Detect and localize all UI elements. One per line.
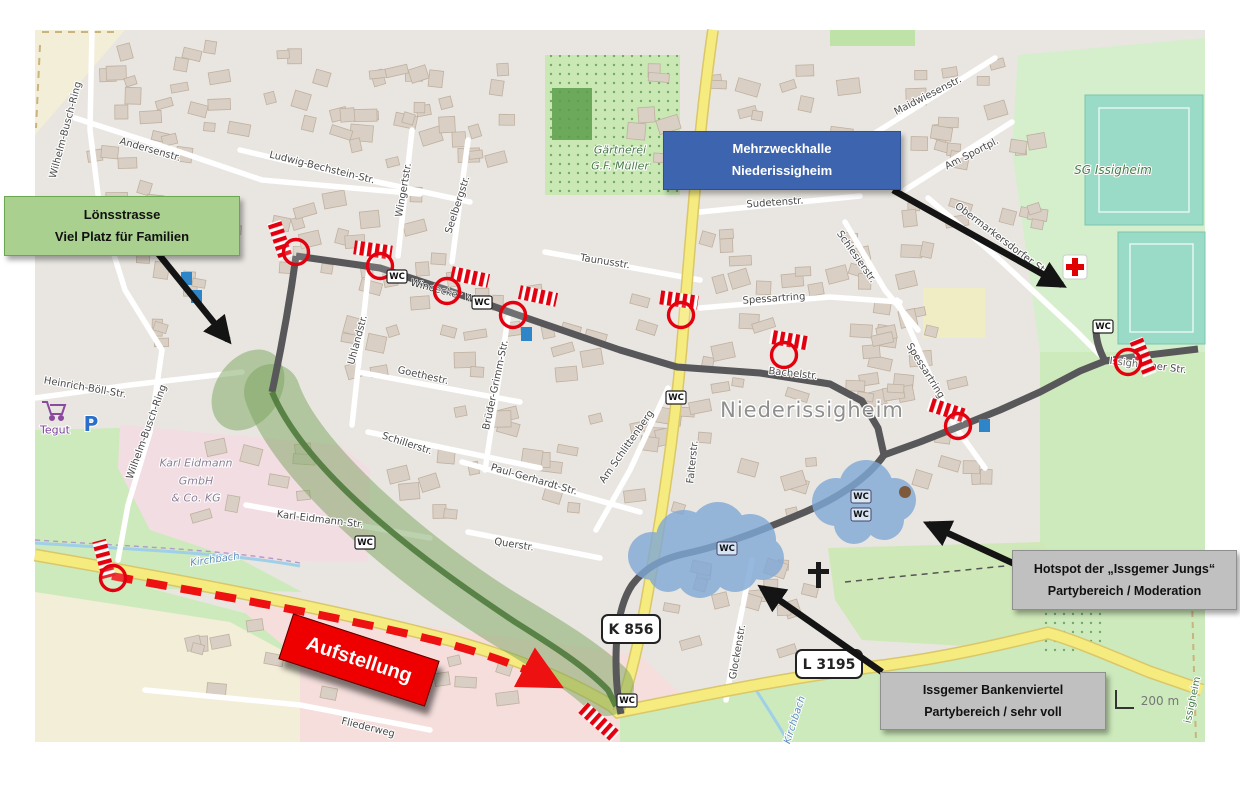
building xyxy=(174,57,189,72)
svg-text:& Co. KG: & Co. KG xyxy=(171,492,220,505)
building xyxy=(359,210,380,229)
building xyxy=(340,108,355,123)
building xyxy=(720,238,733,252)
building xyxy=(924,325,938,338)
svg-text:WC: WC xyxy=(619,696,635,706)
callout-hotspot: Hotspot der „Issgemer Jungs“ Partybereic… xyxy=(1012,550,1237,610)
wc-marker: WC xyxy=(617,694,637,707)
callout-line: Issgemer Bankenviertel xyxy=(881,683,1105,697)
building xyxy=(496,691,520,706)
building xyxy=(712,592,730,609)
tegut-label: Tegut xyxy=(39,424,71,437)
svg-text:WC: WC xyxy=(853,510,869,520)
svg-text:WC: WC xyxy=(719,544,735,554)
svg-text:WC: WC xyxy=(853,492,869,502)
wc-marker: WC xyxy=(666,391,686,404)
callout-line: Mehrzweckhalle xyxy=(664,142,900,157)
wc-marker: WC xyxy=(472,296,492,309)
building xyxy=(434,672,450,687)
building xyxy=(398,482,420,500)
svg-text:GmbH: GmbH xyxy=(179,475,214,488)
building xyxy=(850,324,873,338)
building xyxy=(796,65,814,77)
building xyxy=(354,109,377,122)
svg-text:WC: WC xyxy=(1095,322,1111,332)
building xyxy=(729,255,751,266)
building xyxy=(846,380,865,391)
building xyxy=(246,619,264,632)
building xyxy=(1009,139,1027,154)
svg-text:G.F. Müller: G.F. Müller xyxy=(591,160,650,173)
building xyxy=(204,40,217,54)
building xyxy=(101,145,119,158)
building xyxy=(805,457,816,466)
building xyxy=(454,352,476,368)
building xyxy=(862,344,880,358)
building xyxy=(125,87,141,104)
building xyxy=(1031,219,1044,230)
wc-marker: WC xyxy=(1093,320,1113,333)
building xyxy=(410,296,430,310)
svg-text:SG Issigheim: SG Issigheim xyxy=(1074,163,1152,177)
svg-text:WC: WC xyxy=(389,272,405,282)
building xyxy=(555,366,578,382)
building xyxy=(428,70,444,88)
building xyxy=(349,138,362,153)
building xyxy=(454,406,467,418)
svg-text:Gärtnerei: Gärtnerei xyxy=(594,144,646,157)
callout-line: Niederissigheim xyxy=(664,164,900,179)
building xyxy=(764,579,778,588)
building xyxy=(756,281,771,295)
svg-text:200 m: 200 m xyxy=(1141,694,1179,708)
place-label: Niederissigheim xyxy=(720,398,904,422)
building xyxy=(439,96,453,110)
parking-icon: P xyxy=(84,412,99,436)
building xyxy=(489,79,504,96)
building xyxy=(497,63,509,76)
wc-marker: WC xyxy=(387,270,407,283)
building xyxy=(431,253,446,265)
svg-text:Karl Eidmann: Karl Eidmann xyxy=(159,457,232,470)
building xyxy=(499,114,515,125)
callout-bankenviertel: Issgemer Bankenviertel Partybereich / se… xyxy=(880,672,1106,730)
building xyxy=(455,676,477,688)
callout-line: Viel Platz für Familien xyxy=(5,230,239,245)
callout-line: Partybereich / Moderation xyxy=(1013,584,1236,598)
svg-text:L 3195: L 3195 xyxy=(803,657,856,673)
callout-line: Partybereich / sehr voll xyxy=(881,705,1105,719)
building xyxy=(288,49,302,64)
svg-text:WC: WC xyxy=(474,298,490,308)
building xyxy=(118,157,137,168)
building xyxy=(977,76,989,85)
wc-marker: WC xyxy=(717,542,737,555)
building xyxy=(452,132,466,148)
building xyxy=(444,509,458,519)
building xyxy=(751,110,763,121)
building xyxy=(638,107,655,123)
building xyxy=(567,502,580,513)
building xyxy=(1027,133,1047,151)
callout-mehrzweckhalle: Mehrzweckhalle Niederissigheim xyxy=(663,131,901,190)
event-route-map-page: Wilhelm-Busch-Ring Andersenstr. Ludwig-B… xyxy=(0,0,1240,795)
wc-marker: WC xyxy=(851,490,871,503)
callout-line: Hotspot der „Issgemer Jungs“ xyxy=(1013,562,1236,576)
building xyxy=(415,262,429,277)
wc-marker: WC xyxy=(851,508,871,521)
building xyxy=(320,686,338,700)
svg-text:K 856: K 856 xyxy=(609,622,654,638)
building xyxy=(930,125,952,141)
building xyxy=(580,348,603,367)
building xyxy=(627,122,646,140)
callout-loensstrasse: Lönsstrasse Viel Platz für Familien xyxy=(4,196,240,256)
building xyxy=(887,384,904,393)
building xyxy=(208,99,231,111)
svg-text:WC: WC xyxy=(357,538,373,548)
building xyxy=(470,366,484,377)
wc-marker: WC xyxy=(355,536,375,549)
building xyxy=(439,116,456,133)
building xyxy=(623,489,646,503)
building xyxy=(798,96,814,113)
building xyxy=(901,245,923,258)
building xyxy=(980,469,992,484)
building xyxy=(277,50,290,59)
building xyxy=(414,102,425,112)
building xyxy=(920,241,934,258)
building xyxy=(140,110,162,123)
building xyxy=(115,105,128,119)
building xyxy=(365,333,386,353)
building xyxy=(192,278,206,288)
building xyxy=(795,267,811,277)
building xyxy=(732,378,745,388)
building xyxy=(902,209,918,227)
moderation-poi-icon xyxy=(899,486,911,498)
building xyxy=(225,495,240,513)
building xyxy=(915,70,927,79)
first-aid-icon xyxy=(1063,255,1087,279)
building xyxy=(106,66,126,81)
building xyxy=(719,229,733,239)
building xyxy=(808,282,824,296)
building xyxy=(963,461,980,474)
building xyxy=(203,122,215,131)
callout-line: Lönsstrasse xyxy=(5,208,239,223)
building xyxy=(648,72,669,82)
building xyxy=(468,150,483,159)
building xyxy=(321,263,333,274)
road-shield-k856: K 856 xyxy=(602,615,660,643)
building xyxy=(911,137,928,151)
building xyxy=(836,78,860,96)
svg-text:WC: WC xyxy=(668,393,684,403)
